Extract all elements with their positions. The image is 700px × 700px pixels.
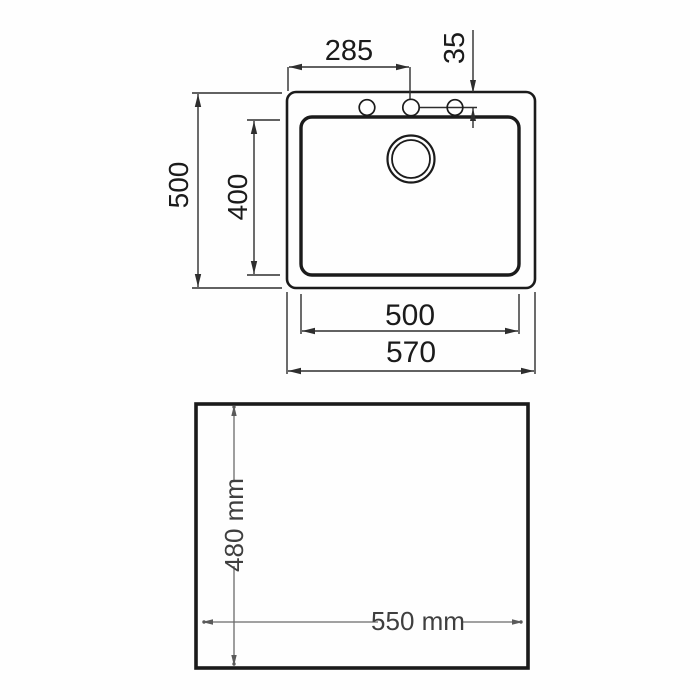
faucet-hole-center (403, 99, 419, 115)
dim-label-overall-depth: 500 (163, 162, 194, 209)
drain-inner-ring (392, 140, 430, 178)
arrowhead-up (470, 108, 476, 121)
dim-label-bowl-depth: 400 (222, 174, 253, 221)
arrowhead-up (195, 94, 201, 107)
arrowhead-right (505, 328, 518, 334)
cutout-template-view: 480 mm 550 mm (196, 404, 528, 668)
arrowhead-left (289, 64, 302, 70)
dimension-cutout-width: 550 mm (202, 606, 523, 636)
arrow-dot (232, 662, 235, 665)
arrowhead-left (302, 328, 315, 334)
arrow-dot (202, 620, 205, 623)
arrowhead-right (396, 64, 409, 70)
dimension-bowl-width: 500 (301, 294, 519, 334)
dim-label-faucet-offset: 285 (325, 35, 373, 67)
arrowhead-left (288, 368, 301, 374)
sink-outer-rim (287, 92, 535, 288)
dimension-cutout-height: 480 mm (219, 405, 249, 666)
dim-label-bowl-width: 500 (385, 299, 435, 332)
sink-top-view: 285 35 500 400 (163, 30, 535, 374)
dimension-bowl-depth: 400 (222, 120, 280, 275)
arrowhead-down (251, 261, 257, 274)
dimension-faucet-offset: 285 (288, 35, 410, 99)
dim-label-cutout-height: 480 mm (219, 478, 249, 572)
dim-label-overall-width: 570 (386, 336, 436, 369)
dimension-hole-inset: 35 (439, 30, 476, 128)
arrowhead-up (251, 121, 257, 134)
drain-outer-ring (388, 136, 435, 183)
arrowhead-down (195, 274, 201, 287)
faucet-hole-left (359, 100, 375, 116)
arrow-dot (232, 405, 235, 408)
arrow-dot (519, 620, 522, 623)
sink-dimension-drawing: 285 35 500 400 (0, 0, 700, 700)
dim-label-cutout-width: 550 mm (371, 606, 465, 636)
arrowhead-right (521, 368, 534, 374)
dim-label-hole-inset: 35 (439, 32, 471, 64)
